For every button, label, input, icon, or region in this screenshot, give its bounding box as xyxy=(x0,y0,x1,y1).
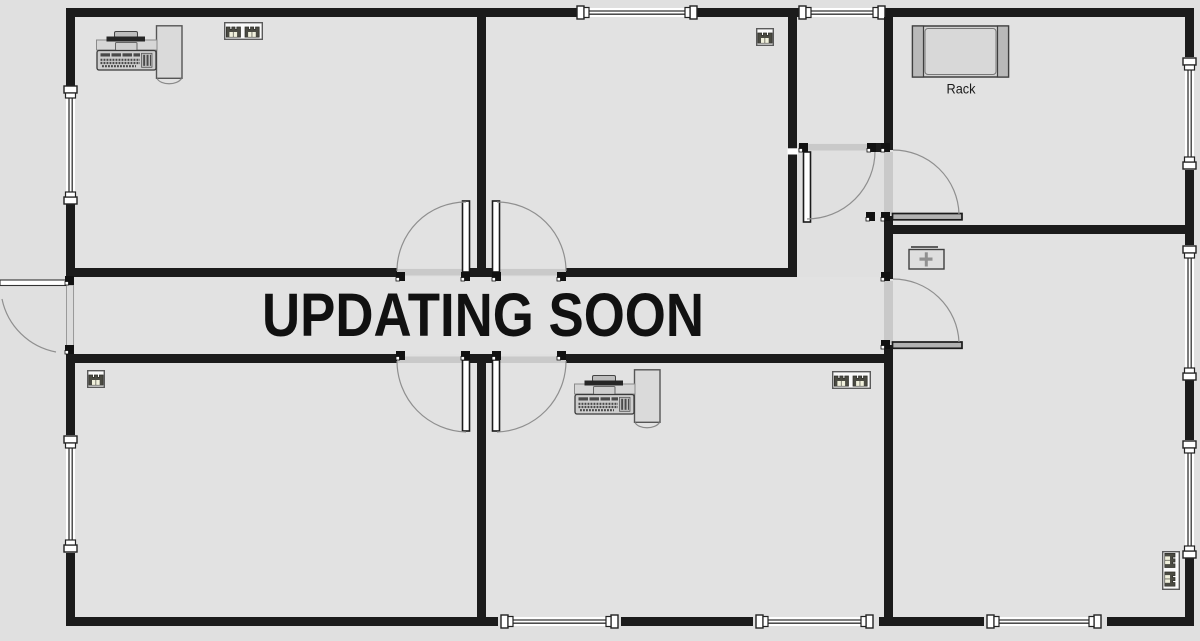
svg-text:Rack: Rack xyxy=(947,81,977,97)
svg-text:UPDATING SOON: UPDATING SOON xyxy=(262,281,704,350)
